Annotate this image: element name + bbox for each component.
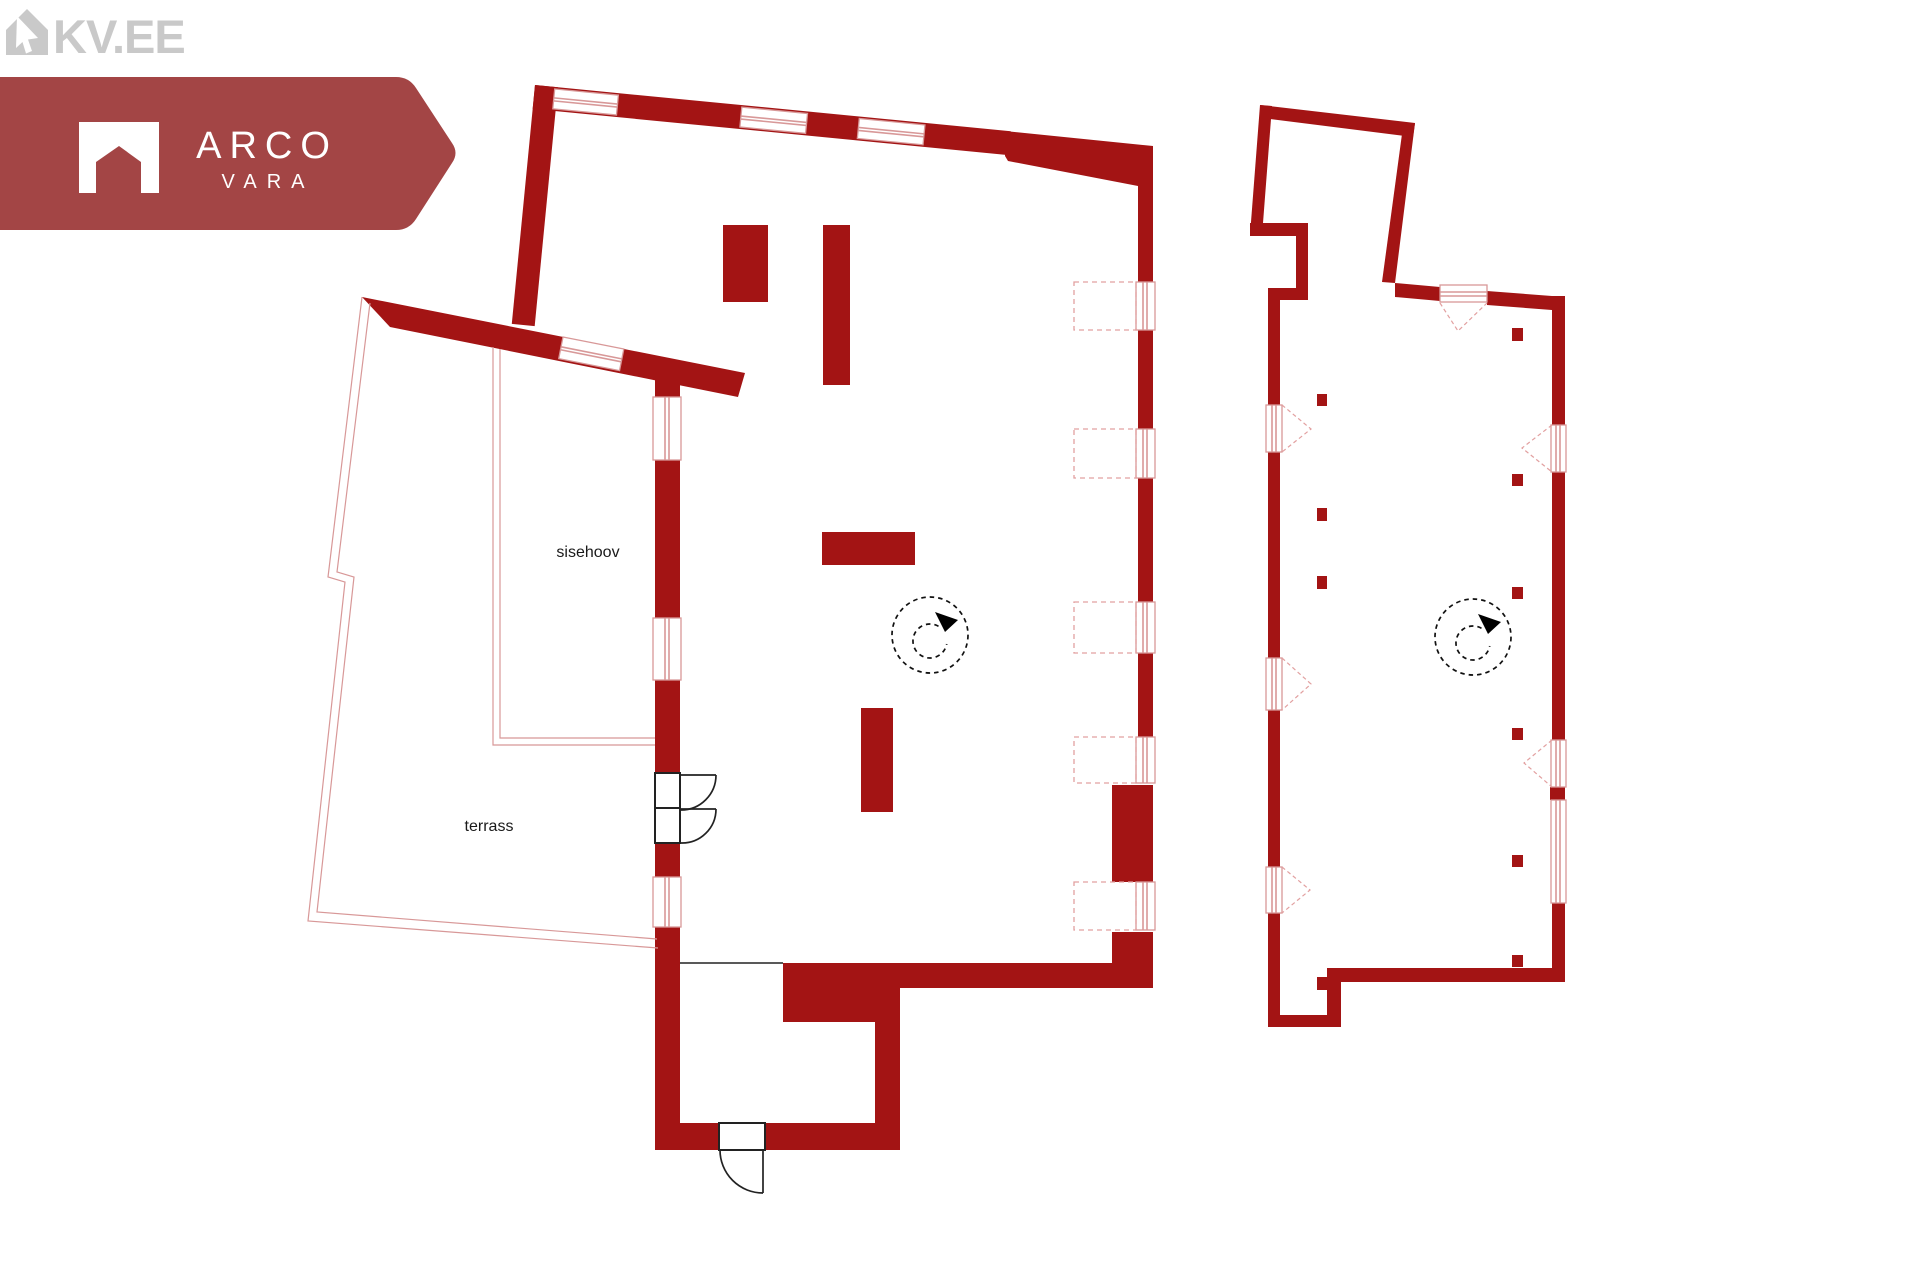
agency-name: ARCO: [196, 125, 338, 167]
main-building-plan: sisehoov terrass: [308, 85, 1155, 1193]
window: [1074, 429, 1155, 478]
floorplan-canvas: KV.EE ARCO VARA: [0, 0, 1920, 1280]
terrace-outline: [308, 297, 658, 948]
window: [653, 618, 681, 680]
interior-pillars: [1317, 328, 1523, 990]
interior-pillars: [723, 225, 915, 812]
annex-walls: [655, 1022, 900, 1150]
door-swing-marker: [1282, 405, 1311, 452]
terrace-label: terrass: [465, 818, 514, 835]
bottom-wall: [1268, 968, 1565, 1027]
right-building-plan: [1250, 105, 1566, 1027]
window: [1074, 882, 1155, 930]
window: [1266, 405, 1311, 452]
kv-logo: KV.EE: [6, 9, 185, 63]
window: [559, 337, 624, 371]
wall: [1296, 235, 1308, 288]
window: [1266, 658, 1311, 710]
window: [653, 397, 681, 460]
wall: [1250, 223, 1308, 236]
window: [1266, 867, 1310, 913]
arco-house-icon: [79, 122, 159, 193]
courtyard-label: sisehoov: [556, 544, 619, 561]
single-door-icon: [719, 1123, 765, 1193]
window-dashed-marker: [1074, 429, 1136, 478]
wall: [362, 297, 745, 397]
window: [1440, 285, 1487, 331]
window-dashed-marker: [1074, 737, 1136, 783]
door-swing-marker: [1524, 740, 1552, 787]
window: [653, 877, 681, 927]
door-swing-marker: [1282, 658, 1311, 710]
window: [1551, 800, 1566, 903]
wall: [1382, 123, 1415, 283]
window-dashed-marker: [1074, 282, 1136, 330]
door-swing-marker: [1440, 303, 1487, 331]
window: [1074, 602, 1155, 653]
window: [1074, 737, 1155, 783]
left-wall: [655, 372, 680, 1150]
wall: [1250, 105, 1272, 236]
window: [1074, 282, 1155, 330]
double-door-icon: [655, 773, 716, 843]
agency-subname: VARA: [222, 171, 315, 193]
window: [1522, 425, 1566, 472]
window-dashed-marker: [1074, 882, 1136, 930]
window-dashed-marker: [1074, 602, 1136, 653]
wall: [1395, 283, 1440, 301]
kv-logo-text: KV.EE: [53, 10, 185, 63]
arco-vara-banner: ARCO VARA: [0, 77, 456, 230]
north-rotation-compass-icon: [1435, 599, 1511, 675]
floorplan-page: { "branding": { "kv_logo": "KV.EE", "age…: [0, 0, 1920, 1280]
wall: [1260, 105, 1415, 137]
door-swing-marker: [1522, 425, 1552, 472]
door-swing-marker: [1282, 867, 1310, 913]
window: [1524, 740, 1566, 787]
north-rotation-compass-icon: [892, 597, 968, 673]
wall: [1268, 288, 1308, 300]
wall: [1005, 131, 1153, 186]
